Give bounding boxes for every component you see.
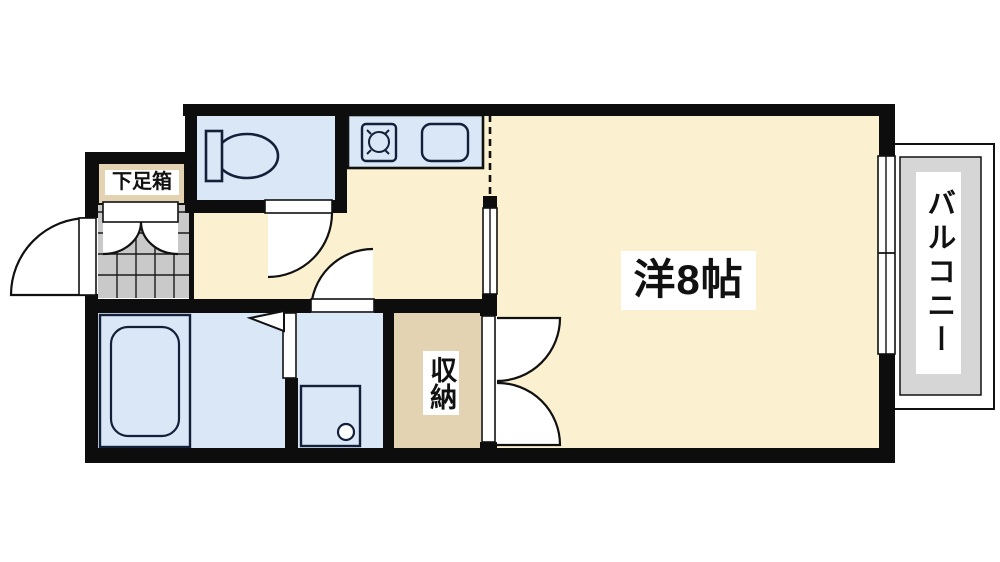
closet-opening (482, 316, 495, 442)
sliding-window-icon (878, 156, 895, 354)
wall-entry-top (85, 152, 197, 164)
main-room-label: 洋8帖 (621, 251, 756, 310)
wall-genkan-edge (189, 204, 194, 299)
wall-kitchen-stub (483, 196, 497, 208)
shoe-box-label: 下足箱 (105, 170, 179, 195)
wall-left-lower (85, 294, 98, 450)
wall-toilet-right (335, 104, 347, 213)
kitchen-counter (348, 115, 483, 168)
storage-label: 収納 (423, 351, 459, 415)
wall-toilet-bottom-right (332, 200, 347, 213)
floor-plan: 下足箱 洋8帖 収納 バルコニー (0, 0, 1000, 562)
washroom-door-leaf (311, 299, 374, 312)
floor-plan-drawing (0, 0, 1000, 562)
entrance-door-swing-icon (11, 218, 96, 295)
wall-closet-stub-top (480, 299, 497, 316)
wall-toilet-bottom-left (185, 200, 266, 213)
wall-mid-right (374, 299, 497, 313)
entrance-door-leaf (79, 218, 96, 295)
wall-right-lower (879, 352, 895, 463)
wall-bath-divider (285, 378, 298, 448)
wall-toilet-left (185, 104, 197, 213)
balcony-label: バルコニー (916, 172, 961, 374)
toilet-door-leaf (265, 200, 332, 213)
wall-right-upper (879, 104, 895, 158)
wall-washroom-closet (383, 313, 394, 448)
bathroom-floor (98, 313, 286, 449)
wall-closet-stub-bottom (480, 442, 497, 451)
wall-top (183, 104, 895, 116)
wall-mid-left (85, 299, 311, 313)
toilet-icon (206, 131, 278, 181)
